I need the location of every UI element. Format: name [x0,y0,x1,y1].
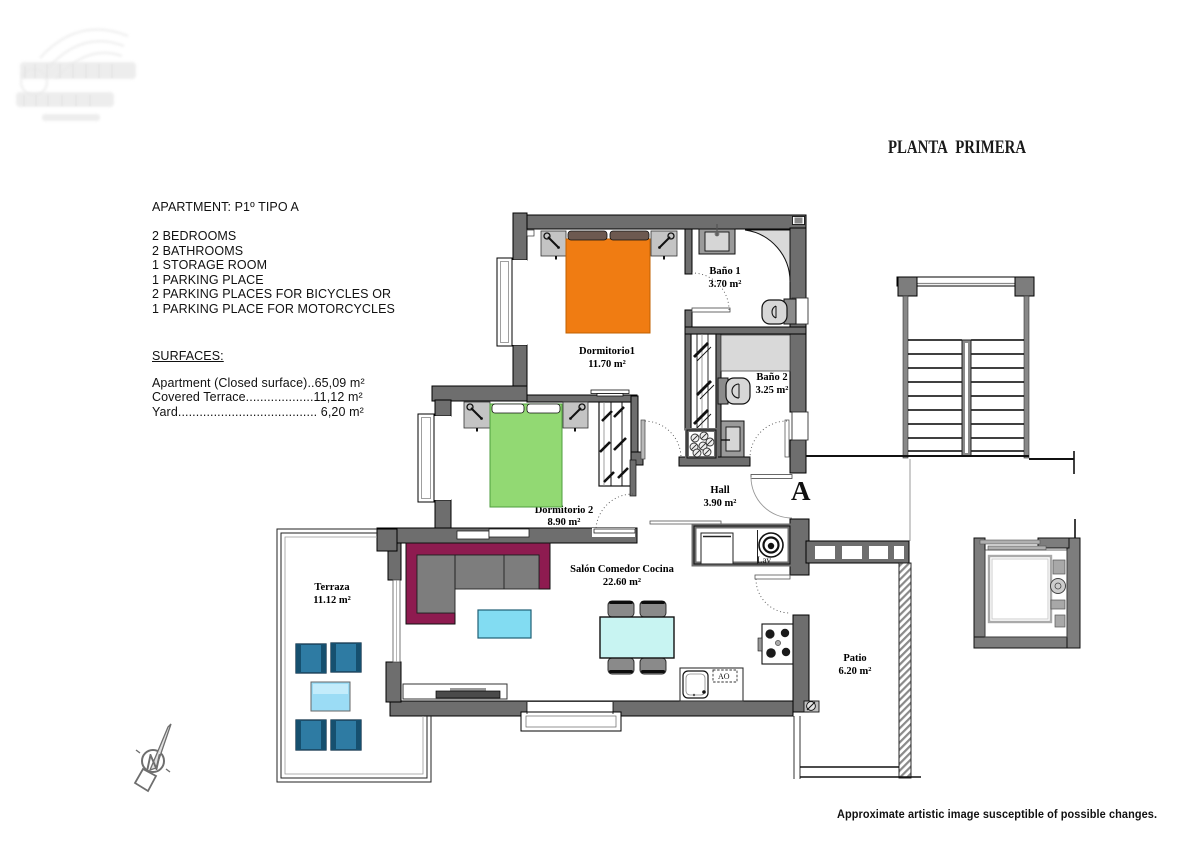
svg-text:AO: AO [718,672,730,681]
svg-text:Lav: Lav [757,555,771,565]
